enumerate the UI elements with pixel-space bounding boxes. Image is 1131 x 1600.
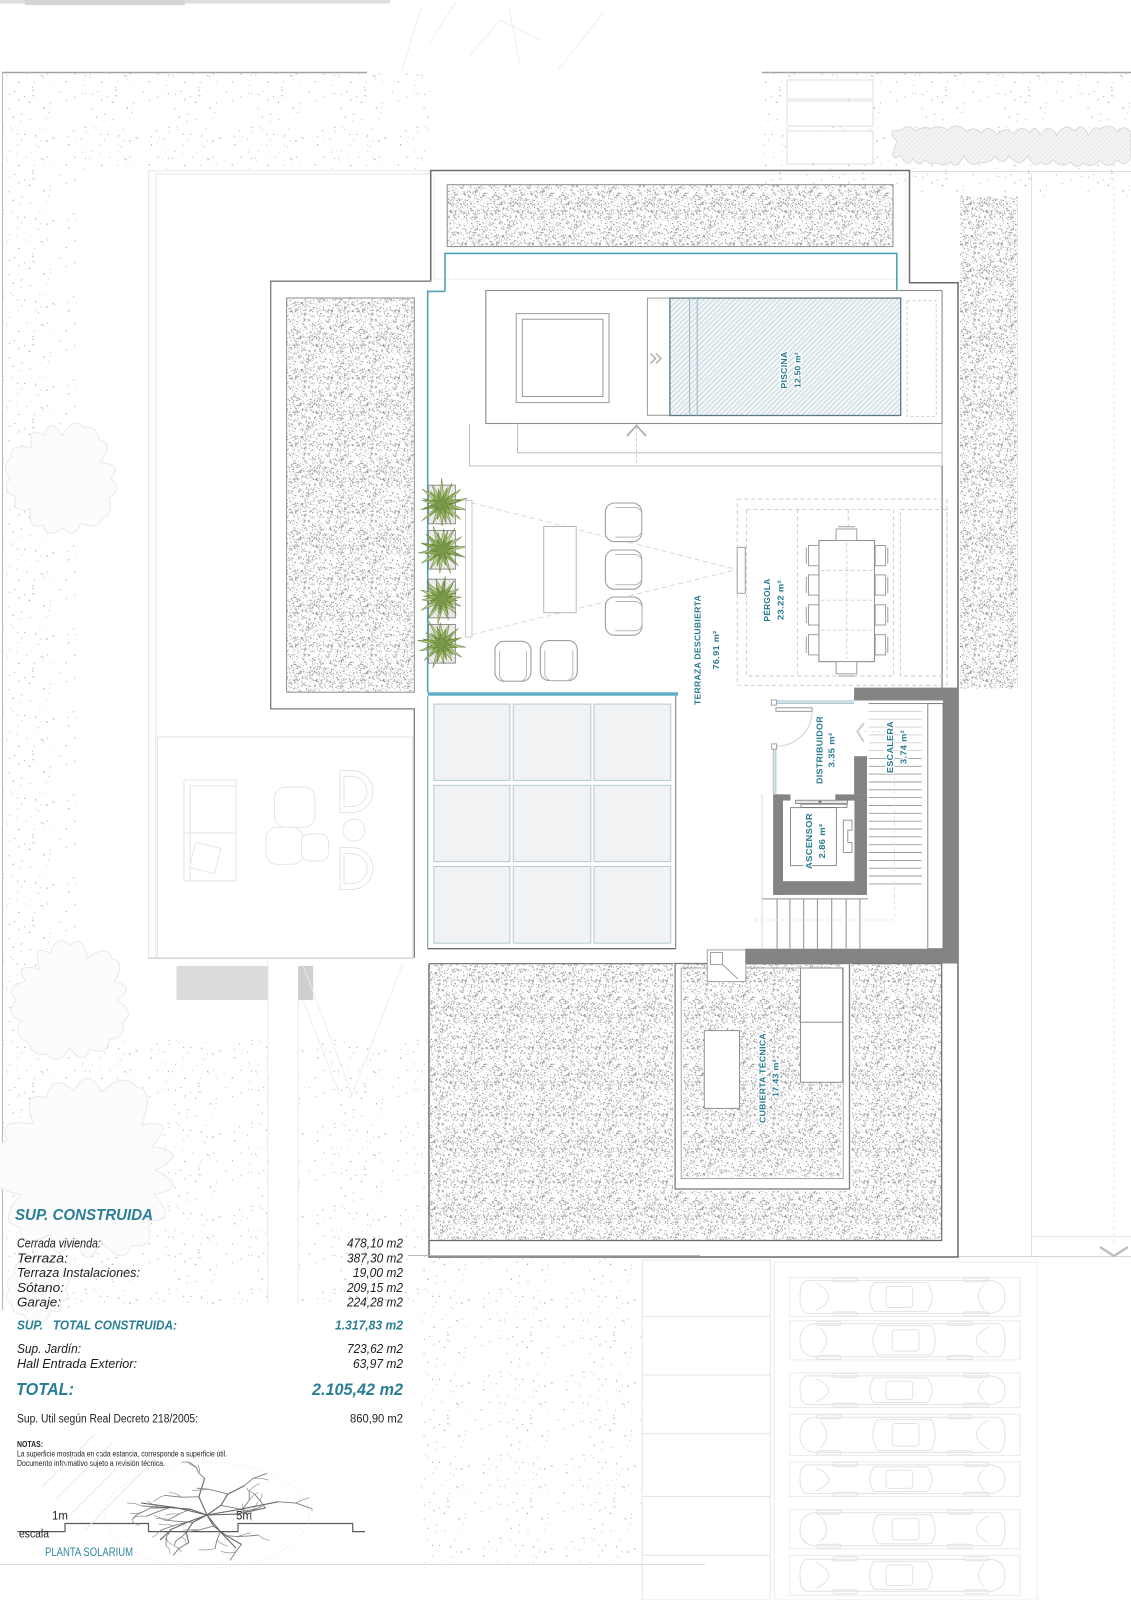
svg-text:3.74 m²: 3.74 m² (899, 730, 909, 764)
svg-text:Cerrada vivienda:: Cerrada vivienda: (17, 1237, 101, 1251)
svg-text:387,30 m2: 387,30 m2 (347, 1251, 403, 1265)
svg-text:TERRAZA DESCUBIERTA: TERRAZA DESCUBIERTA (693, 595, 703, 705)
svg-text:860,90 m2: 860,90 m2 (350, 1414, 403, 1426)
svg-text:La superficie mostrada en cada: La superficie mostrada en cada estancia,… (17, 1450, 227, 1459)
svg-text:PISCINA: PISCINA (779, 352, 789, 389)
svg-text:Sótano:: Sótano: (17, 1281, 64, 1295)
svg-text:2.105,42 m2: 2.105,42 m2 (311, 1381, 403, 1399)
svg-text:ASCENSOR: ASCENSOR (804, 813, 814, 869)
svg-text:DISTRIBUIDOR: DISTRIBUIDOR (815, 716, 825, 784)
svg-text:Terraza:: Terraza: (17, 1251, 68, 1265)
svg-text:Hall Entrada Exterior:: Hall Entrada Exterior: (17, 1357, 137, 1371)
svg-text:CUBIERTA TÉCNICA: CUBIERTA TÉCNICA (757, 1033, 768, 1123)
svg-text:SUP. CONSTRUIDA: SUP. CONSTRUIDA (15, 1207, 153, 1224)
svg-text:SUP. TOTAL CONSTRUIDA:: SUP. TOTAL CONSTRUIDA: (17, 1318, 177, 1333)
svg-text:Terraza Instalaciones:: Terraza Instalaciones: (17, 1266, 140, 1280)
svg-text:ESCALERA: ESCALERA (885, 721, 895, 773)
svg-text:PÉRGOLA: PÉRGOLA (761, 579, 772, 622)
svg-text:TOTAL:: TOTAL: (16, 1379, 74, 1399)
svg-text:63,97 m2: 63,97 m2 (353, 1357, 403, 1371)
svg-text:escala: escala (19, 1529, 50, 1541)
svg-text:224,28 m2: 224,28 m2 (346, 1296, 403, 1310)
svg-text:NOTAS:: NOTAS: (17, 1440, 43, 1449)
svg-text:Sup. Util según Real Decreto 2: Sup. Util según Real Decreto 218/2005: (17, 1414, 198, 1426)
svg-text:PLANTA SOLARIUM: PLANTA SOLARIUM (45, 1545, 133, 1559)
svg-text:76.91 m²: 76.91 m² (711, 631, 721, 670)
svg-text:723,62 m2: 723,62 m2 (347, 1342, 403, 1356)
svg-text:1m: 1m (52, 1511, 68, 1523)
svg-text:2.86 m²: 2.86 m² (817, 824, 827, 859)
svg-text:Sup. Jardín:: Sup. Jardín: (17, 1342, 81, 1356)
svg-text:17.43 m²: 17.43 m² (771, 1059, 781, 1097)
svg-text:478,10 m2: 478,10 m2 (347, 1237, 403, 1251)
svg-text:12.50 m²: 12.50 m² (793, 352, 803, 388)
svg-text:23.22 m²: 23.22 m² (776, 580, 786, 620)
svg-text:19,00 m2: 19,00 m2 (353, 1266, 403, 1280)
svg-text:Garaje:: Garaje: (17, 1296, 61, 1310)
svg-text:209,15 m2: 209,15 m2 (346, 1281, 403, 1295)
svg-text:1.317,83 m2: 1.317,83 m2 (335, 1318, 404, 1333)
svg-text:3.35 m²: 3.35 m² (827, 733, 837, 768)
